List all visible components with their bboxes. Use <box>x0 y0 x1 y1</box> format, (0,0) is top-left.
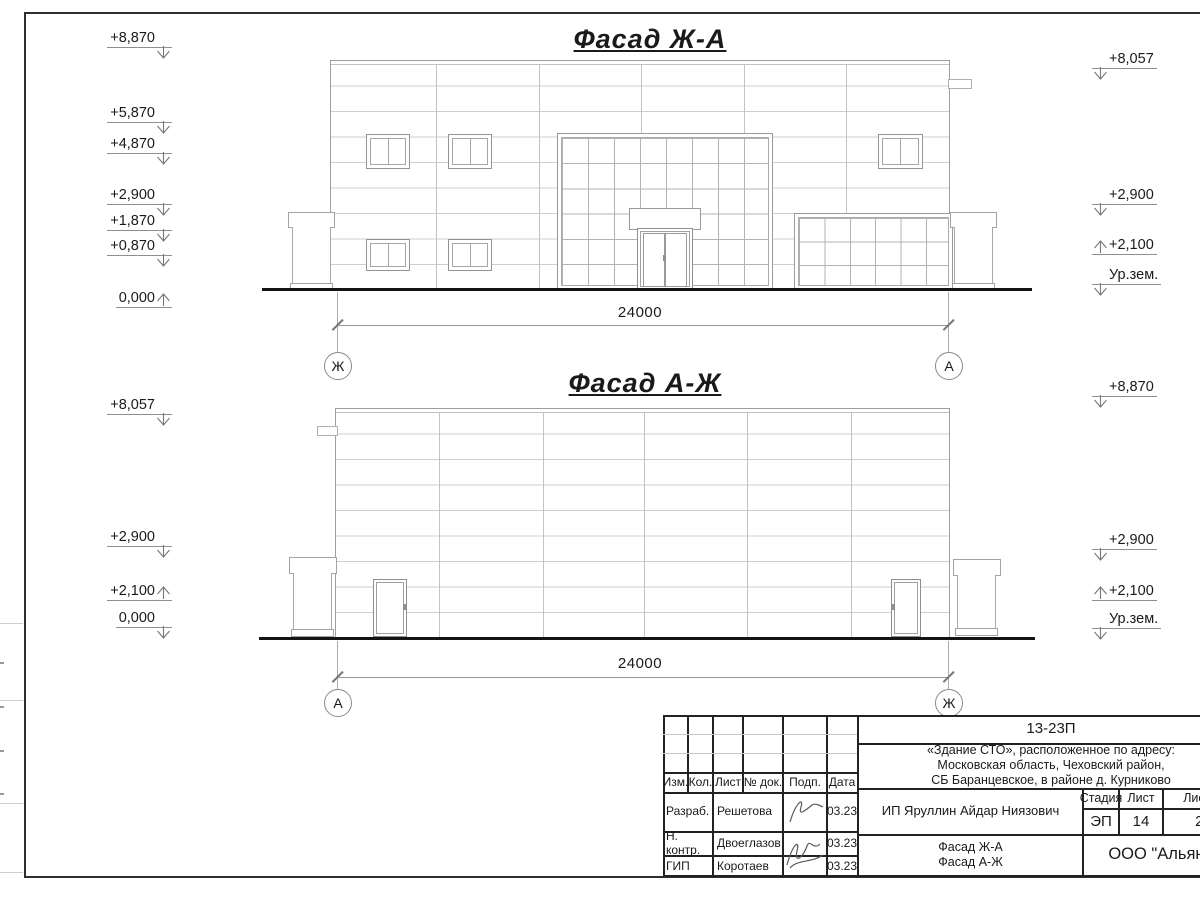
elevation-mark: Ур.зем. <box>1092 611 1161 629</box>
col-header-podp: Подп. <box>783 772 827 792</box>
entrance-canopy <box>629 208 701 230</box>
col-header-ndok: № док. <box>743 772 783 792</box>
elevation-mark: 0,000 <box>102 610 172 628</box>
frame-top <box>24 12 1200 14</box>
name-cell: Двоеглазов <box>714 831 785 855</box>
porch-body <box>292 227 331 283</box>
facade-top-title: Фасад Ж-А <box>520 24 780 55</box>
elevation-arrow-icon <box>156 413 171 427</box>
parapet-line <box>331 64 949 65</box>
side-table-line <box>0 803 23 804</box>
col-header-list: Лист <box>713 772 743 792</box>
client-name: ИП Яруллин Айдар Ниязович <box>859 788 1082 834</box>
stage-value: ЭП <box>1084 810 1118 834</box>
door-handle <box>892 604 895 610</box>
address-line: СБ Баранцевское, в районе д. Курниково <box>931 773 1171 788</box>
sheets-total: 22 <box>1164 810 1200 834</box>
window <box>878 134 923 169</box>
back-door <box>373 579 407 637</box>
ground-line <box>262 288 1032 291</box>
column-line <box>436 64 437 289</box>
entrance-door-unit <box>637 228 693 290</box>
date-cell: 03.23 <box>827 792 857 831</box>
elevation-arrow-icon <box>156 152 171 166</box>
signature <box>784 794 826 830</box>
elevation-arrow-icon <box>1093 548 1108 562</box>
porch-base <box>955 628 998 636</box>
elevation-arrow-icon <box>1093 67 1108 81</box>
window <box>366 239 410 271</box>
frame-left <box>24 12 26 878</box>
elevation-mark: +2,900 <box>1092 187 1157 205</box>
elevation-arrow-icon <box>1093 585 1108 599</box>
axis-label: А <box>944 358 953 374</box>
porch-body <box>954 227 993 283</box>
sheet-title: Фасад Ж-А Фасад А-Ж <box>859 834 1082 875</box>
door-leaf <box>665 233 687 287</box>
gate-glazing-grid <box>798 217 949 286</box>
elevation-mark: +2,100 <box>1092 237 1157 255</box>
elevation-mark: +1,870 <box>102 213 172 231</box>
elevation-mark: +8,057 <box>102 397 172 415</box>
elevation-arrow-icon <box>1093 239 1108 253</box>
door-leaf <box>643 233 665 287</box>
window <box>366 134 410 169</box>
date-cell: 03.23 <box>827 855 857 877</box>
side-table-mark <box>0 750 4 752</box>
dimension-value: 24000 <box>540 655 740 672</box>
elevation-arrow-icon <box>156 292 171 306</box>
elevation-mark: +8,057 <box>1092 51 1157 69</box>
axis-bubble: А <box>935 352 963 380</box>
porch-body <box>957 575 996 628</box>
role-cell: Разраб. <box>663 792 715 831</box>
signature <box>783 833 827 875</box>
porch-roof <box>288 212 335 228</box>
elevation-arrow-icon <box>1093 283 1108 297</box>
name-cell: Решетова <box>714 792 785 831</box>
elevation-mark: +8,870 <box>1092 379 1157 397</box>
column-line <box>747 412 748 638</box>
facade-bottom-building <box>335 408 950 639</box>
col-header-izm: Изм. <box>663 772 688 792</box>
elevation-mark: +4,870 <box>102 136 172 154</box>
axis-bubble: Ж <box>324 352 352 380</box>
window <box>448 239 492 271</box>
column-line <box>439 412 440 638</box>
porch-body <box>293 573 332 629</box>
elevation-arrow-icon <box>156 254 171 268</box>
dimension-line <box>337 325 948 326</box>
elevation-arrow-icon <box>156 46 171 60</box>
axis-label: Ж <box>943 695 956 711</box>
axis-bubble: Ж <box>935 689 963 717</box>
sheet-label: Лист <box>1120 788 1162 808</box>
elevation-arrow-icon <box>156 585 171 599</box>
sheet-title-line: Фасад Ж-А <box>938 840 1002 855</box>
ground-line <box>259 637 1035 640</box>
window <box>448 134 492 169</box>
elevation-mark: +0,870 <box>102 238 172 256</box>
col-header-data: Дата <box>827 772 857 792</box>
column-line <box>644 412 645 638</box>
extension-line <box>337 641 338 689</box>
title-block: Изм. Кол. Лист № док. Подп. Дата Разраб.… <box>663 715 1200 877</box>
column-line <box>851 412 852 638</box>
side-table-mark <box>0 706 4 708</box>
elevation-arrow-icon <box>156 626 171 640</box>
porch-roof <box>289 557 337 574</box>
porch-roof <box>953 559 1001 576</box>
role-cell: Н. контр. <box>663 831 715 855</box>
sheets-label: Листов <box>1164 788 1200 808</box>
parapet-line <box>336 412 949 413</box>
drawing-sheet: Фасад Ж-А <box>0 0 1200 900</box>
porch-base <box>291 629 334 637</box>
elevation-mark: +2,100 <box>1092 583 1157 601</box>
elevation-mark: +2,100 <box>102 583 172 601</box>
doc-code: 13-23П <box>859 715 1200 743</box>
gate-glazing <box>794 213 953 290</box>
roof-pipe <box>317 426 338 436</box>
side-table-line <box>0 872 23 873</box>
sheet-number: 14 <box>1120 810 1162 834</box>
elevation-mark: +5,870 <box>102 105 172 123</box>
side-table-line <box>0 623 23 624</box>
elevation-arrow-icon <box>156 545 171 559</box>
column-line <box>543 412 544 638</box>
door-handle <box>663 255 666 261</box>
elevation-arrow-icon <box>1093 203 1108 217</box>
elevation-mark: +8,870 <box>102 30 172 48</box>
facade-bottom-title: Фасад А-Ж <box>515 368 775 399</box>
elevation-mark: Ур.зем. <box>1092 267 1161 285</box>
address-line: Московская область, Чеховский район, <box>937 758 1164 773</box>
side-table-mark <box>0 662 4 664</box>
elevation-mark: +2,900 <box>102 529 172 547</box>
roof-pipe <box>948 79 972 89</box>
elevation-mark: +2,900 <box>102 187 172 205</box>
side-table-line <box>0 700 23 701</box>
axis-bubble: А <box>324 689 352 717</box>
date-cell: 03.23 <box>827 831 857 855</box>
name-cell: Коротаев <box>714 855 785 877</box>
porch-roof <box>950 212 997 228</box>
company-name: ООО "Альянс" <box>1084 834 1200 875</box>
project-address: «Здание СТО», расположенное по адресу: М… <box>859 743 1200 788</box>
axis-label: Ж <box>332 358 345 374</box>
back-door <box>891 579 921 637</box>
elevation-mark: 0,000 <box>102 290 172 308</box>
address-line: «Здание СТО», расположенное по адресу: <box>927 743 1175 758</box>
elevation-arrow-icon <box>156 121 171 135</box>
elevation-arrow-icon <box>1093 395 1108 409</box>
dimension-line <box>337 677 948 678</box>
col-header-kol: Кол. <box>688 772 713 792</box>
elevation-arrow-icon <box>1093 627 1108 641</box>
extension-line <box>948 641 949 689</box>
dimension-value: 24000 <box>540 304 740 321</box>
axis-label: А <box>333 695 342 711</box>
column-line <box>539 64 540 289</box>
role-cell: ГИП <box>663 855 715 877</box>
sheet-title-line: Фасад А-Ж <box>938 855 1002 870</box>
door-handle <box>403 604 406 610</box>
facade-top-building <box>330 60 950 290</box>
elevation-mark: +2,900 <box>1092 532 1157 550</box>
side-table-mark <box>0 793 4 795</box>
stage-label: Стадия <box>1084 788 1118 808</box>
